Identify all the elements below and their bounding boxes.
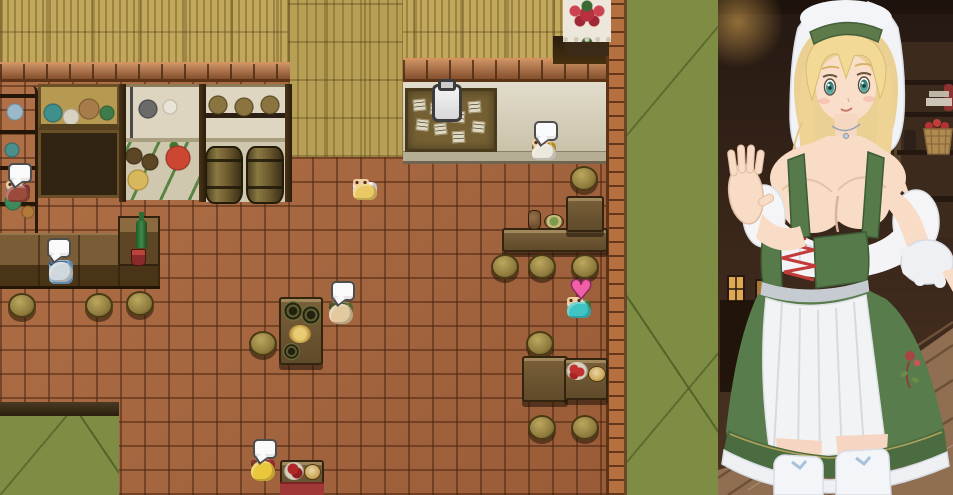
- stool: [85, 293, 113, 318]
- side-table: [566, 196, 604, 232]
- barrel-top: [283, 301, 303, 321]
- barrel-alcove: [202, 138, 288, 202]
- hutch-cabinet: [38, 130, 120, 198]
- npc-patron-teal[interactable]: [567, 302, 595, 354]
- speech-bubble: [253, 439, 277, 459]
- npc-waitress[interactable]: [353, 184, 381, 236]
- gold-plate: [289, 325, 311, 343]
- heart-icon: ♥: [569, 278, 593, 304]
- rose-bouquet-table: [563, 0, 611, 42]
- dining-table: [522, 356, 568, 402]
- barrel-table: [279, 297, 323, 365]
- clipboard-icon[interactable]: [432, 84, 462, 122]
- stool: [491, 254, 519, 279]
- waitress-portrait-art: [718, 0, 953, 495]
- wall-cap-bricks-left: [0, 62, 290, 82]
- game-screen: ♥: [0, 0, 953, 495]
- hanging-jugs: [202, 84, 288, 138]
- stool: [528, 415, 556, 440]
- stool: [526, 331, 554, 356]
- kitchen-wall-pans: [122, 84, 202, 138]
- notice-paper: [413, 98, 427, 111]
- speech-bubble: [47, 238, 71, 258]
- barrel-top: [283, 343, 300, 360]
- basketweave-wall: [288, 0, 403, 157]
- barrel: [246, 146, 284, 204]
- npc-villager-red[interactable]: [6, 186, 34, 238]
- notice-paper: [415, 118, 429, 131]
- wood-post: [199, 84, 206, 202]
- notice-paper: [452, 131, 466, 144]
- waitress-portrait: [718, 0, 953, 495]
- npc-kid[interactable]: [251, 461, 279, 495]
- barrel: [205, 146, 243, 204]
- rose-table-front: [565, 42, 609, 56]
- kid-meal: [280, 460, 324, 495]
- npc-patron-blue[interactable]: [49, 262, 77, 314]
- hutch-upper-shelf: [38, 84, 120, 130]
- wood-post: [119, 84, 126, 202]
- stool: [571, 415, 599, 440]
- green-floor-strip: [627, 0, 718, 495]
- notice-paper: [433, 122, 447, 135]
- cook-pots: [526, 208, 566, 234]
- notice-paper: [468, 101, 482, 114]
- stool: [249, 331, 277, 356]
- speech-bubble: [8, 163, 32, 183]
- stool: [570, 166, 598, 191]
- wine-cup: [131, 249, 146, 266]
- stool: [8, 293, 36, 318]
- stool: [126, 291, 154, 316]
- brick-column: [606, 0, 627, 495]
- meal-apples-bread: [564, 358, 608, 400]
- notice-paper: [472, 120, 486, 133]
- speech-bubble: [331, 281, 355, 301]
- kitchen-counter-produce: [122, 138, 202, 200]
- wood-post: [285, 84, 292, 202]
- wine-bottle: [136, 220, 147, 248]
- counter-front: [403, 152, 608, 164]
- green-floor-corner: [0, 416, 119, 495]
- npc-chef[interactable]: [532, 144, 560, 196]
- npc-elder[interactable]: [329, 304, 357, 356]
- stool: [528, 254, 556, 279]
- barrel-top: [301, 305, 321, 325]
- speech-bubble: [534, 121, 558, 141]
